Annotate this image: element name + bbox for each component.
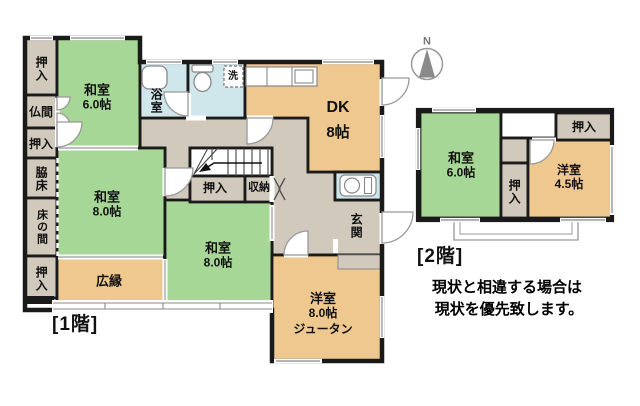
- bathtub-icon: [142, 66, 167, 89]
- washitsu8-center-room: [165, 200, 272, 302]
- closet-bottom-left: [25, 256, 57, 298]
- floorplan-drawing: [0, 0, 640, 406]
- storage-room: [245, 176, 272, 202]
- hiroen-room: [57, 257, 165, 302]
- toilet-icon-1: [192, 65, 213, 92]
- toilet-icon-2: [340, 175, 376, 196]
- wall-stub: [23, 296, 54, 304]
- kitchen-counter-icon: [246, 67, 317, 86]
- washitsu6-2f-room: [420, 112, 501, 218]
- floorplan-page: 押入 仏間 押入 脇床 床の間 押入 和室 6.0帖 浴室 洗 DK 8帖 和室…: [0, 0, 640, 406]
- closet-2: [25, 128, 57, 158]
- tokonoma-room: [25, 198, 57, 256]
- dk-exterior-door-arc: [382, 78, 409, 105]
- stairs-2f: [501, 112, 556, 138]
- closet-mid-2f-room: [501, 163, 528, 218]
- landing-2f: [501, 138, 528, 163]
- youshitsu8-room: [272, 255, 382, 361]
- floor2-plan: [420, 112, 612, 218]
- genkan-door-arc: [382, 212, 413, 243]
- laundry-box: [224, 66, 243, 87]
- stairs-closet-room: [190, 176, 245, 202]
- butsuma-room: [25, 95, 57, 128]
- closet-top-2f-room: [556, 113, 612, 140]
- compass-icon: [412, 49, 443, 80]
- balcony-outline: [454, 220, 578, 240]
- closet-top-left: [25, 38, 57, 95]
- genkan-step: [338, 255, 382, 269]
- wakidoko-room: [25, 158, 57, 198]
- washitsu8-left-room: [57, 148, 165, 257]
